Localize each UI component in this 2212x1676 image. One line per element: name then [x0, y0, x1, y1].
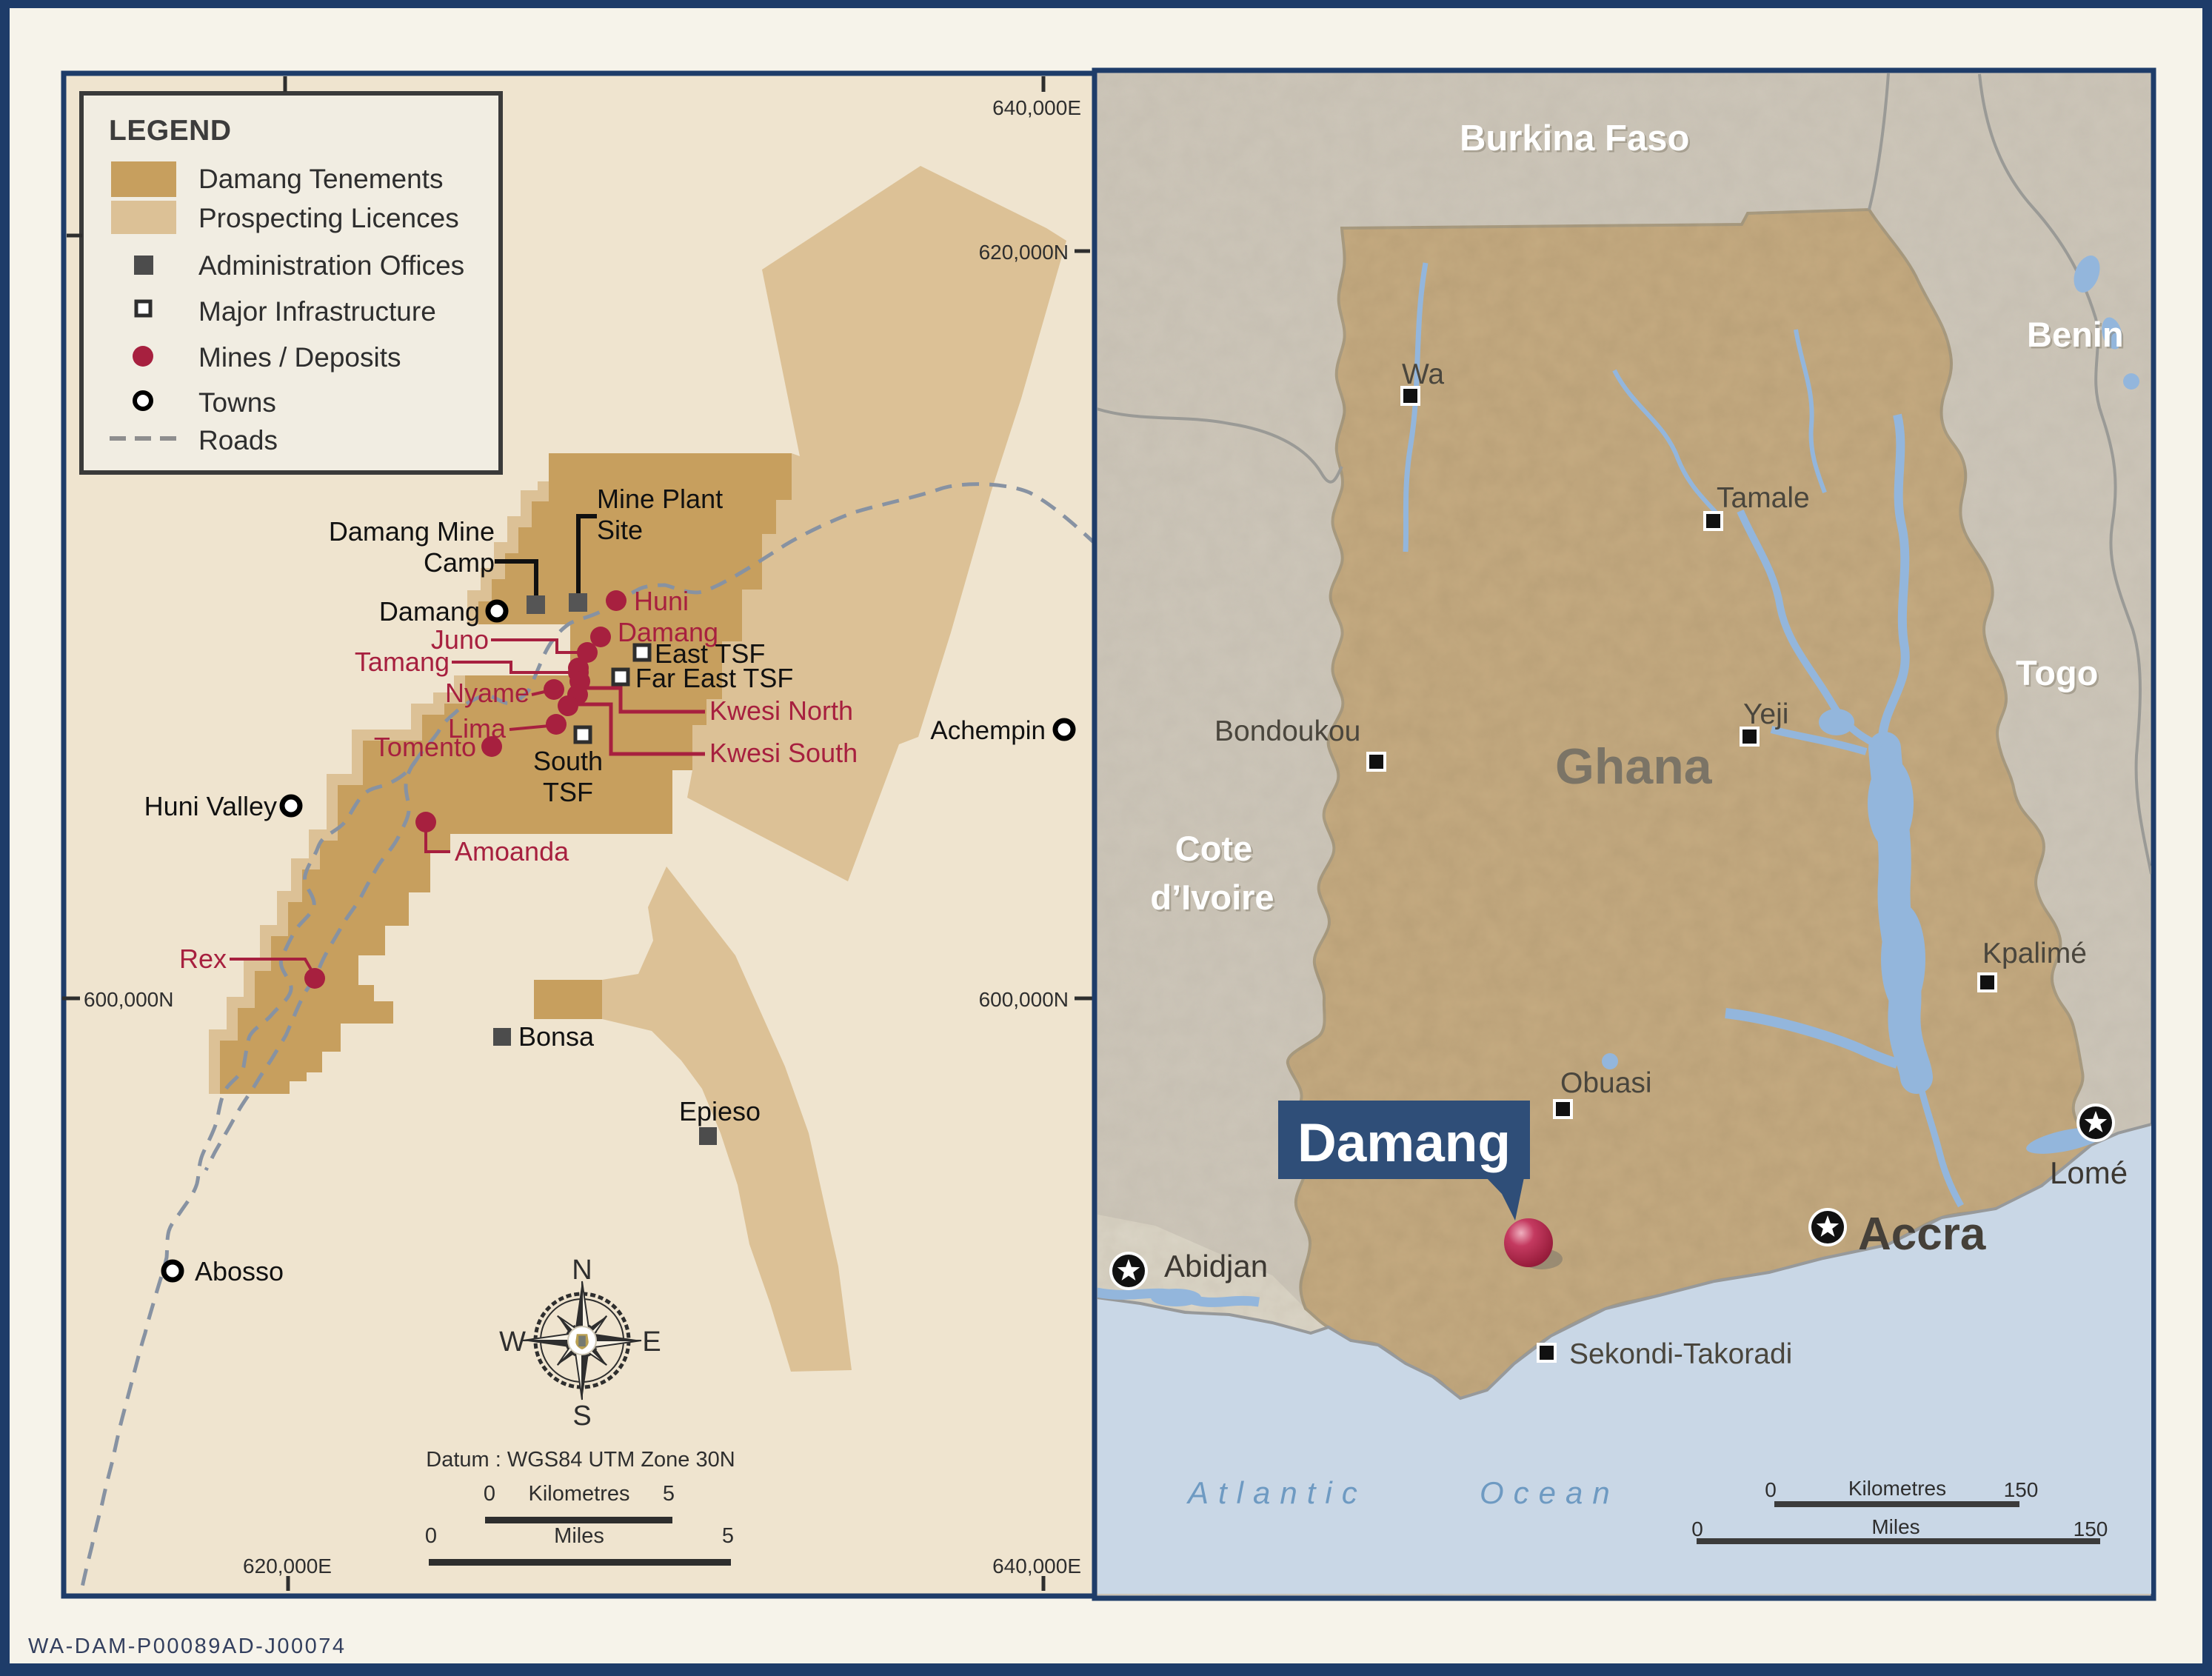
svg-text:Bonsa: Bonsa — [518, 1021, 595, 1052]
svg-text:Atlantic: Atlantic — [1186, 1475, 1367, 1510]
svg-text:E: E — [642, 1326, 661, 1358]
svg-text:Ghana: Ghana — [1555, 738, 1713, 795]
svg-text:620,000N: 620,000N — [979, 241, 1069, 264]
svg-text:Damang: Damang — [1297, 1113, 1511, 1173]
svg-text:Bondoukou: Bondoukou — [1214, 715, 1360, 747]
svg-text:0: 0 — [1765, 1478, 1777, 1501]
svg-text:Tomento: Tomento — [374, 732, 476, 762]
svg-text:600,000N: 600,000N — [84, 988, 173, 1011]
svg-text:Cote: Cote — [1175, 829, 1252, 868]
svg-text:N: N — [572, 1255, 592, 1286]
svg-text:Towns: Towns — [198, 387, 276, 418]
svg-text:South: South — [533, 746, 603, 776]
svg-text:Damang Tenements: Damang Tenements — [198, 164, 443, 194]
svg-text:150: 150 — [2074, 1518, 2108, 1540]
svg-text:Burkina Faso: Burkina Faso — [1460, 118, 1689, 158]
svg-text:WA-DAM-P00089AD-J00074: WA-DAM-P00089AD-J00074 — [28, 1635, 346, 1658]
svg-text:Benin: Benin — [2027, 315, 2124, 354]
svg-text:Yeji: Yeji — [1743, 698, 1788, 730]
svg-text:0: 0 — [484, 1482, 495, 1506]
svg-text:Huni: Huni — [634, 586, 689, 616]
svg-text:600,000N: 600,000N — [979, 988, 1069, 1011]
svg-text:Kilometres: Kilometres — [529, 1482, 630, 1506]
svg-text:Achempin: Achempin — [930, 716, 1046, 745]
svg-text:Kpalimé: Kpalimé — [1982, 938, 2087, 969]
svg-text:Datum : WGS84 UTM Zone 30N: Datum : WGS84 UTM Zone 30N — [426, 1448, 735, 1472]
svg-text:Administration Offices: Administration Offices — [198, 250, 464, 281]
svg-text:Kwesi North: Kwesi North — [709, 695, 853, 726]
svg-text:Tamang: Tamang — [355, 647, 450, 677]
svg-text:Nyame: Nyame — [445, 678, 529, 708]
svg-text:Accra: Accra — [1858, 1209, 1986, 1260]
svg-text:Far East TSF: Far East TSF — [635, 663, 793, 693]
svg-text:0: 0 — [425, 1524, 437, 1548]
svg-text:Major Infrastructure: Major Infrastructure — [198, 296, 436, 327]
svg-text:620,000E: 620,000E — [243, 1555, 332, 1577]
svg-text:Abidjan: Abidjan — [1164, 1249, 1268, 1283]
svg-text:150: 150 — [2004, 1478, 2039, 1501]
svg-text:Prospecting Licences: Prospecting Licences — [198, 203, 459, 233]
svg-text:d’Ivoire: d’Ivoire — [1150, 878, 1274, 917]
svg-text:LEGEND: LEGEND — [109, 115, 232, 147]
svg-text:Togo: Togo — [2016, 653, 2098, 692]
svg-text:Miles: Miles — [554, 1524, 604, 1548]
svg-text:TSF: TSF — [543, 777, 593, 807]
svg-text:Ocean: Ocean — [1480, 1475, 1620, 1510]
svg-text:0: 0 — [1691, 1518, 1703, 1540]
svg-text:Amoanda: Amoanda — [455, 836, 569, 867]
svg-text:Damang Mine: Damang Mine — [329, 516, 495, 547]
svg-text:Damang: Damang — [379, 596, 480, 627]
svg-text:Lomé: Lomé — [2050, 1155, 2128, 1190]
svg-text:Huni Valley: Huni Valley — [144, 791, 277, 821]
svg-text:Rex: Rex — [179, 944, 227, 974]
svg-text:W: W — [499, 1326, 526, 1358]
svg-text:5: 5 — [722, 1524, 734, 1548]
svg-text:5: 5 — [663, 1482, 675, 1506]
svg-text:S: S — [572, 1400, 591, 1432]
svg-text:640,000E: 640,000E — [992, 96, 1081, 119]
svg-text:Mine Plant: Mine Plant — [597, 484, 723, 514]
svg-text:Kwesi South: Kwesi South — [709, 738, 858, 768]
svg-text:Kilometres: Kilometres — [1848, 1477, 1946, 1500]
svg-text:Sekondi-Takoradi: Sekondi-Takoradi — [1569, 1338, 1792, 1370]
svg-text:640,000E: 640,000E — [992, 1555, 1081, 1577]
svg-text:Miles: Miles — [1871, 1515, 1919, 1538]
svg-text:Abosso: Abosso — [195, 1256, 284, 1286]
svg-text:Mines / Deposits: Mines / Deposits — [198, 342, 401, 373]
svg-text:Roads: Roads — [198, 425, 278, 455]
svg-text:Tamale: Tamale — [1717, 482, 1810, 514]
svg-text:Wa: Wa — [1402, 358, 1444, 390]
svg-text:Epieso: Epieso — [679, 1096, 761, 1126]
svg-text:Camp: Camp — [424, 547, 495, 578]
svg-text:Obuasi: Obuasi — [1560, 1067, 1652, 1099]
svg-text:Site: Site — [597, 515, 643, 545]
